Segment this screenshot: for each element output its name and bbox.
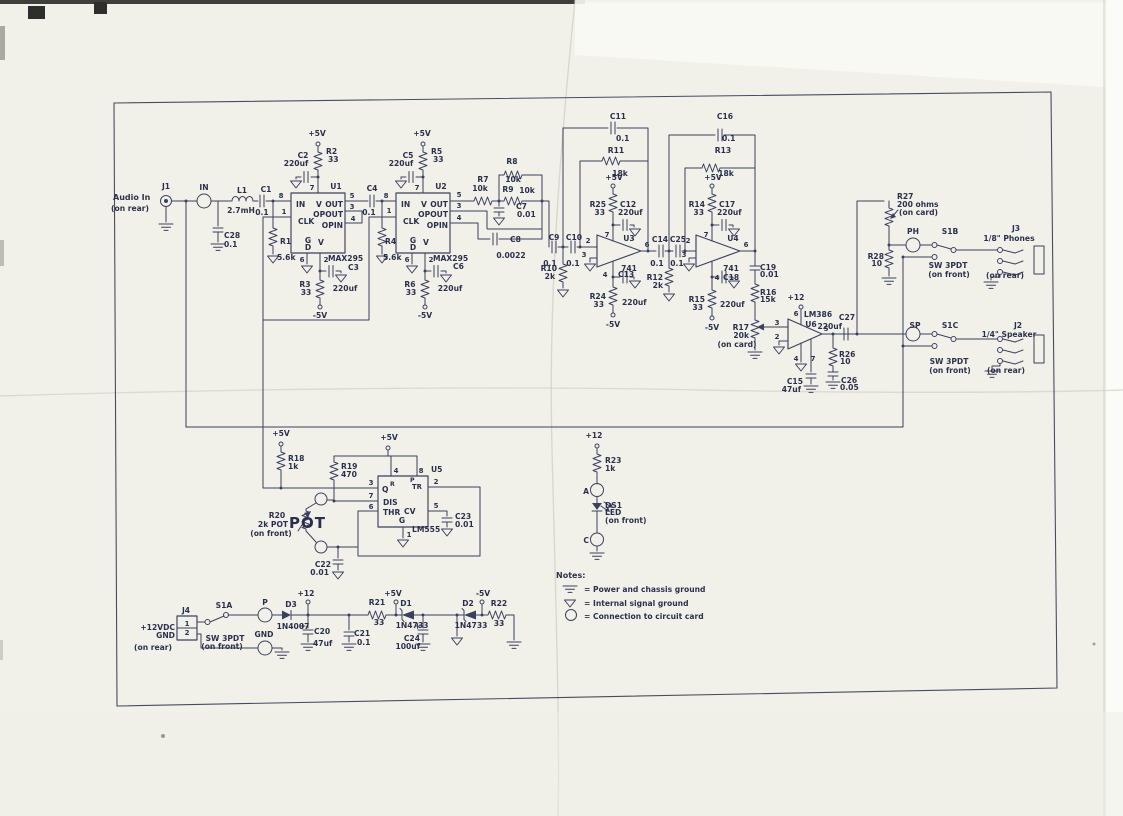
schematic-label: U1	[330, 182, 341, 191]
opamp-u3-stage	[563, 122, 696, 317]
schematic-label: 0.01	[310, 568, 329, 577]
schematic-label: 220uf	[720, 300, 745, 309]
schematic-label: 7	[605, 231, 610, 239]
schematic-label: SW 3PDT	[930, 357, 970, 366]
switch-s1c-arm	[937, 334, 951, 338]
schematic-label: 4	[715, 274, 720, 282]
schematic-label: (on card)	[899, 208, 938, 217]
schematic-label: 4	[394, 467, 399, 475]
schematic-label: C13	[618, 270, 634, 279]
schematic-label: +12	[586, 431, 603, 440]
schematic-label: SW 3PDT	[929, 261, 969, 270]
schematic-label: 5.6k	[383, 253, 402, 262]
schematic-label: 5.6k	[277, 253, 296, 262]
schematic-label: D	[305, 243, 311, 252]
schematic-label: 4	[457, 214, 462, 222]
schematic-label: G	[399, 516, 405, 525]
schematic-label: 220uf	[817, 322, 842, 331]
schematic-label: 741	[723, 264, 739, 273]
card-connection-icon	[566, 610, 577, 621]
schematic-label: 6	[645, 241, 650, 249]
fold-crease-vertical	[551, 0, 575, 816]
schematic-label: 33	[328, 155, 339, 164]
junction-dots	[185, 176, 905, 617]
schematic-label: 10	[840, 357, 851, 366]
schematic-label: 33	[594, 208, 605, 217]
schematic-label: OUT	[430, 200, 449, 209]
jack-j2-contacts	[1003, 339, 1023, 364]
schematic-label: +5V	[384, 589, 402, 598]
schematic-label: GND	[255, 630, 274, 639]
schematic-label: 7	[369, 492, 374, 500]
schematic-label: 33	[301, 288, 312, 297]
schematic-label: C21	[354, 629, 370, 638]
schematic-label: 0.1	[650, 259, 663, 268]
schematic-label: 2	[686, 237, 691, 245]
schematic-label: 1/4" Speaker	[982, 330, 1037, 339]
schematic-label: 0.01	[760, 270, 779, 279]
schematic-label: -5V	[476, 589, 490, 598]
schematic-label: P	[262, 598, 268, 607]
schematic-label: U4	[727, 234, 738, 243]
schematic-label: S1A	[216, 601, 233, 610]
schematic-label: 7	[415, 184, 420, 192]
schematic-label: (on front)	[201, 642, 243, 651]
schematic-label: J2	[1013, 321, 1022, 330]
schematic-label: +5V	[605, 173, 623, 182]
schematic-label: 0.1	[362, 208, 375, 217]
schematic-label: 1N4733	[455, 621, 488, 630]
schematic-label: R11	[608, 146, 624, 155]
schematic-label: 1	[387, 207, 392, 215]
schematic-label: (on front)	[605, 516, 647, 525]
schematic-label: 220uf	[284, 159, 309, 168]
schematic-label: (on rear)	[986, 271, 1024, 280]
schematic-label: 2.7mH	[227, 206, 255, 215]
zener-d1	[402, 611, 414, 620]
schematic-label: IN	[401, 200, 410, 209]
schematic-label: C14	[652, 235, 668, 244]
schematic-label: U2	[435, 182, 446, 191]
schematic-label: Notes:	[556, 571, 585, 580]
card-connection-anode	[591, 484, 604, 497]
schematic-label: PH	[907, 227, 919, 236]
schematic-label: 220uf	[717, 208, 742, 217]
schematic-label: Q	[382, 485, 389, 494]
schematic-label: 3	[369, 479, 374, 487]
schematic-label: C8	[510, 235, 521, 244]
schematic-label: 470	[341, 470, 357, 479]
schematic-label: 0.1	[224, 240, 237, 249]
schematic-label: 2	[434, 478, 439, 486]
schematic-label: +12	[298, 589, 315, 598]
schematic-label: R22	[491, 599, 507, 608]
schematic-label: 1	[282, 208, 287, 216]
schematic-label: 2	[775, 333, 780, 341]
schematic-label: C10	[566, 233, 582, 242]
schematic-label: +12	[788, 293, 805, 302]
schematic-label: 6	[405, 256, 410, 264]
schematic-label: 0.1	[357, 638, 370, 647]
schematic-label: L1	[237, 186, 247, 195]
schematic-label: J3	[1011, 224, 1020, 233]
schematic-label: 3	[350, 203, 355, 211]
schematic-label: D3	[285, 600, 297, 609]
schematic-label: D1	[400, 599, 412, 608]
schematic-label: +5V	[272, 429, 290, 438]
schematic-label: 1	[407, 531, 412, 539]
schematic-label: (on front)	[250, 529, 292, 538]
schematic-label: OPOUT	[418, 210, 449, 219]
led-ds1-symbol	[592, 503, 602, 510]
schematic-label: 10k	[472, 184, 489, 193]
schematic-label: 8	[419, 467, 424, 475]
schematic-label: (on card)	[717, 340, 756, 349]
schematic-label: 0.01	[455, 520, 474, 529]
schematic-label: 8	[384, 192, 389, 200]
jack-j2-body	[1034, 335, 1044, 363]
schematic-label: R	[390, 481, 395, 488]
schematic-label: 33	[433, 155, 444, 164]
schematic-label: 3	[775, 319, 780, 327]
schematic-label: 220uf	[622, 298, 647, 307]
fold-crease-horizontal	[0, 388, 1123, 396]
zener-d2	[464, 611, 476, 620]
chassis-ground-icon	[563, 586, 577, 592]
schematic-label: OUT	[325, 200, 344, 209]
schematic-label: DIS	[383, 498, 398, 507]
schematic-label: 8	[279, 192, 284, 200]
cap-c1	[260, 195, 264, 207]
schematic-label: 1	[185, 620, 190, 628]
schematic-label: 47uf	[313, 639, 333, 648]
schematic-label: 2k	[545, 272, 556, 281]
schematic-label: 220uf	[333, 284, 358, 293]
schematic-label: = Connection to circuit card	[584, 612, 704, 621]
schematic-label: -5V	[606, 320, 620, 329]
schematic-label: C1	[261, 185, 272, 194]
schematic-label: 33	[374, 618, 385, 627]
inductor-l1	[232, 197, 253, 202]
card-connection-in	[197, 194, 211, 208]
schematic-label: 7	[310, 184, 315, 192]
schematic-label: +5V	[413, 129, 431, 138]
schematic-label: R1	[280, 237, 291, 246]
schematic-label: LM386	[804, 310, 832, 319]
schematic-label: CV	[404, 507, 416, 516]
schematic-label: R4	[385, 237, 396, 246]
schematic-label: R7	[477, 175, 488, 184]
card-connection-pot-bottom	[315, 541, 327, 553]
schematic-label: 6	[744, 241, 749, 249]
schematic-label: 0.01	[517, 210, 536, 219]
schematic-label: U5	[431, 465, 442, 474]
schematic-label: 4	[794, 355, 799, 363]
schematic-canvas: Audio In(on rear)J1INL12.7mHC280.1C10.18…	[0, 0, 1123, 816]
schematic-label: R21	[369, 598, 385, 607]
schematic-label: +5V	[308, 129, 326, 138]
schematic-label: = Power and chassis ground	[584, 585, 705, 594]
schematic-label: 2	[586, 237, 591, 245]
schematic-label: 3	[582, 251, 587, 259]
schematic-label: C25	[670, 235, 686, 244]
schematic-label: V	[421, 200, 427, 209]
schematic-label: 15k	[760, 295, 777, 304]
schematic-label: 100uf	[395, 642, 420, 651]
schematic-label: 1N4007	[277, 622, 310, 631]
schematic-label: 0.1	[616, 134, 629, 143]
schematic-label: D	[410, 243, 416, 252]
schematic-label: U3	[623, 234, 634, 243]
schematic-label: 2	[324, 256, 329, 264]
schematic-label: GND	[156, 631, 175, 640]
scan-blob	[94, 2, 107, 14]
schematic-label: R9	[502, 185, 513, 194]
schematic-label: V	[318, 238, 324, 247]
switch-s1a-arm	[210, 616, 224, 622]
schematic-label: S1B	[942, 227, 959, 236]
schematic-label: 6	[369, 503, 374, 511]
schematic-label: C16	[717, 112, 733, 121]
schematic-label: 4	[351, 215, 356, 223]
schematic-label: IN	[199, 183, 208, 192]
schematic-label: 20k	[733, 331, 750, 340]
schematic-label: 2	[429, 256, 434, 264]
schematic-label: 47uf	[782, 385, 802, 394]
notes-legend	[563, 586, 577, 621]
schematic-label: OPOUT	[313, 210, 344, 219]
schematic-label: 0.05	[840, 383, 859, 392]
schematic-label: 4	[603, 271, 608, 279]
schematic-label: 1N4733	[396, 621, 429, 630]
schematic-label: 33	[494, 619, 505, 628]
schematic-label: POT	[289, 514, 326, 532]
schematic-label: A	[583, 487, 589, 496]
schematic-label: OPIN	[322, 221, 343, 230]
schematic-label: MAX295	[328, 254, 363, 263]
schematic-label: J4	[181, 606, 190, 615]
schematic-label: C18	[723, 273, 739, 282]
schematic-label: V	[316, 200, 322, 209]
schematic-label: 2k POT	[258, 520, 289, 529]
schematic-label: IN	[296, 200, 305, 209]
schematic-label: 0.1	[566, 259, 579, 268]
schematic-label: C9	[549, 233, 560, 242]
schematic-label: OPIN	[427, 221, 448, 230]
schematic-label: 0.1	[670, 259, 683, 268]
schematic-label: (on front)	[929, 366, 971, 375]
bypass-line	[186, 257, 903, 427]
schematic-label: C28	[224, 231, 240, 240]
card-connection-cathode	[591, 533, 604, 546]
schematic-label: LM555	[412, 525, 440, 534]
schematic-label: 0.1	[255, 208, 268, 217]
pot-wiper-arrow	[757, 324, 764, 331]
schematic-label: D2	[462, 599, 474, 608]
signal-ground-icon	[565, 600, 576, 607]
schematic-label: (on rear)	[134, 643, 172, 652]
schematic-label: 10k	[519, 186, 536, 195]
schematic-label: +5V	[704, 173, 722, 182]
card-connection-p	[258, 608, 272, 622]
schematic-label: (on front)	[928, 270, 970, 279]
scan-speck	[1093, 643, 1096, 646]
schematic-label: 33	[593, 300, 604, 309]
schematic-label: R13	[715, 146, 731, 155]
schematic-label: 33	[692, 303, 703, 312]
schematic-label: 33	[406, 288, 417, 297]
schematic-label: SP	[909, 321, 920, 330]
schematic-label: TR	[412, 483, 423, 491]
schematic-label: 6	[794, 310, 799, 318]
schematic-label: 3	[682, 251, 687, 259]
schematic-label: 10k	[505, 175, 522, 184]
schematic-label: 5	[434, 502, 439, 510]
schematic-label: -5V	[418, 311, 432, 320]
schematic-label: 3	[457, 202, 462, 210]
schematic-label: S1C	[942, 321, 959, 330]
schematic-label: 7	[704, 231, 709, 239]
schematic-label: 5	[350, 192, 355, 200]
switch-s1a-pole	[205, 620, 210, 625]
diode-d3	[282, 611, 291, 620]
schematic-label: C6	[453, 262, 464, 271]
schematic-label: 0.0022	[496, 251, 525, 260]
schematic-label: 0.1	[722, 134, 735, 143]
schematic-label: 33	[693, 208, 704, 217]
schematic-label: 5	[457, 191, 462, 199]
schematic-label: 10	[871, 259, 882, 268]
scan-artifacts	[0, 0, 1123, 816]
switch-s1b-arm	[937, 245, 951, 249]
schematic-label: R20	[269, 511, 285, 520]
scanned-schematic-page: Audio In(on rear)J1INL12.7mHC280.1C10.18…	[0, 0, 1123, 816]
schematic-label: 2	[185, 629, 190, 637]
schematic-label: 2k	[653, 281, 664, 290]
schematic-label: C27	[839, 313, 855, 322]
schematic-label: -5V	[313, 311, 327, 320]
schematic-label: U6	[805, 320, 816, 329]
schematic-label: J1	[161, 182, 170, 191]
schematic-label: R8	[506, 157, 517, 166]
schematic-label: 220uf	[389, 159, 414, 168]
scan-blob	[28, 6, 45, 19]
schematic-label: V	[423, 238, 429, 247]
schematic-label: (on rear)	[111, 204, 149, 213]
schematic-label: 6	[300, 256, 305, 264]
schematic-label: 7	[811, 355, 816, 363]
schematic-label: 1k	[288, 462, 299, 471]
schematic-label: 220uf	[618, 208, 643, 217]
card-connection-gnd	[258, 641, 272, 655]
jack-j3-body	[1034, 246, 1044, 274]
schematic-label: 220uf	[438, 284, 463, 293]
schematic-label: C	[583, 536, 589, 545]
schematic-label: = Internal signal ground	[584, 599, 689, 608]
schematic-label: C20	[314, 627, 330, 636]
output-section	[186, 238, 1044, 427]
schematic-label: (on rear)	[987, 366, 1025, 375]
schematic-label: C11	[610, 112, 626, 121]
card-connection-pot-top	[315, 493, 327, 505]
switch-s1b-pole	[932, 243, 937, 248]
switch-s1c-pole	[932, 332, 937, 337]
schematic-label: C3	[348, 263, 359, 272]
schematic-label: 1k	[605, 464, 616, 473]
schematic-label: +5V	[380, 433, 398, 442]
schematic-label: C4	[367, 184, 378, 193]
card-connection-ph	[906, 238, 920, 252]
schematic-label: -5V	[705, 323, 719, 332]
schematic-label: 1/8" Phones	[983, 234, 1035, 243]
paper-highlight	[575, 0, 1123, 88]
schematic-label: Audio In	[113, 193, 151, 202]
labels-layer: Audio In(on rear)J1INL12.7mHC280.1C10.18…	[111, 112, 1037, 652]
